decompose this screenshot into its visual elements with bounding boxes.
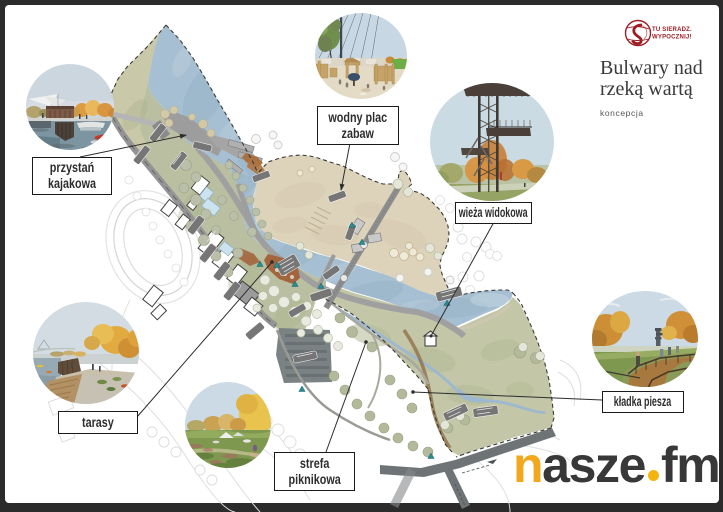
- svg-text:WYPOCZNIJ!: WYPOCZNIJ!: [652, 35, 692, 41]
- svg-text:TU SIERADZ.: TU SIERADZ.: [652, 27, 692, 33]
